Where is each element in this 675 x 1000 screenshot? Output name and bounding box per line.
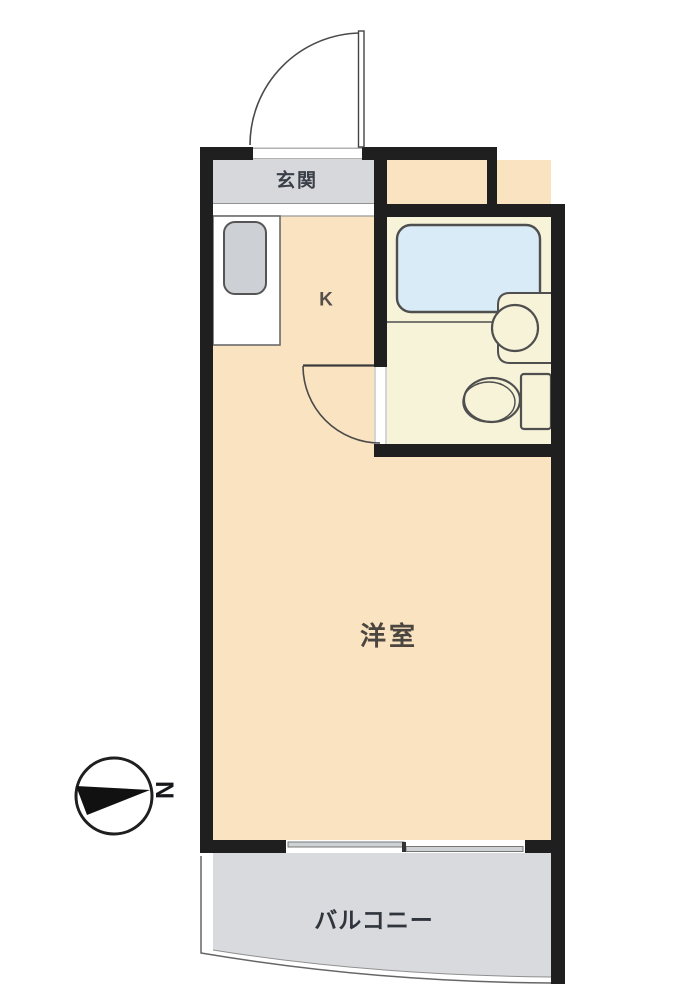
floor-plan-page: N 玄関 K 洋室 バルコニー: [0, 0, 675, 1000]
compass-north-label: N: [150, 781, 178, 799]
wall-bathroom-top: [374, 204, 565, 217]
bathroom-door-opening: [374, 367, 387, 444]
window-center-lock: [402, 842, 406, 852]
wall-right: [551, 204, 565, 984]
wall-left: [200, 147, 213, 853]
toilet-icon: [464, 378, 520, 422]
compass: N: [76, 758, 178, 834]
genkan-step: [213, 204, 374, 216]
toilet-tank: [521, 374, 551, 429]
window-pane-right: [406, 847, 523, 852]
entrance-door-swing-arc: [250, 33, 360, 145]
window-pane-left: [288, 842, 404, 847]
entrance-opening: [253, 147, 362, 160]
kitchen-label: K: [319, 290, 333, 311]
floor-plan-drawing: N 玄関 K 洋室 バルコニー: [0, 0, 675, 1000]
wall-bathroom-bottom: [374, 444, 565, 457]
kitchen-sink: [224, 222, 266, 294]
washbasin-icon: [492, 305, 538, 351]
genkan-label: 玄関: [276, 169, 318, 192]
western-room-label: 洋室: [360, 621, 418, 651]
balcony-label: バルコニー: [314, 907, 434, 933]
wall-pipe-space-right: [487, 147, 497, 204]
entrance-door-leaf: [359, 31, 365, 147]
